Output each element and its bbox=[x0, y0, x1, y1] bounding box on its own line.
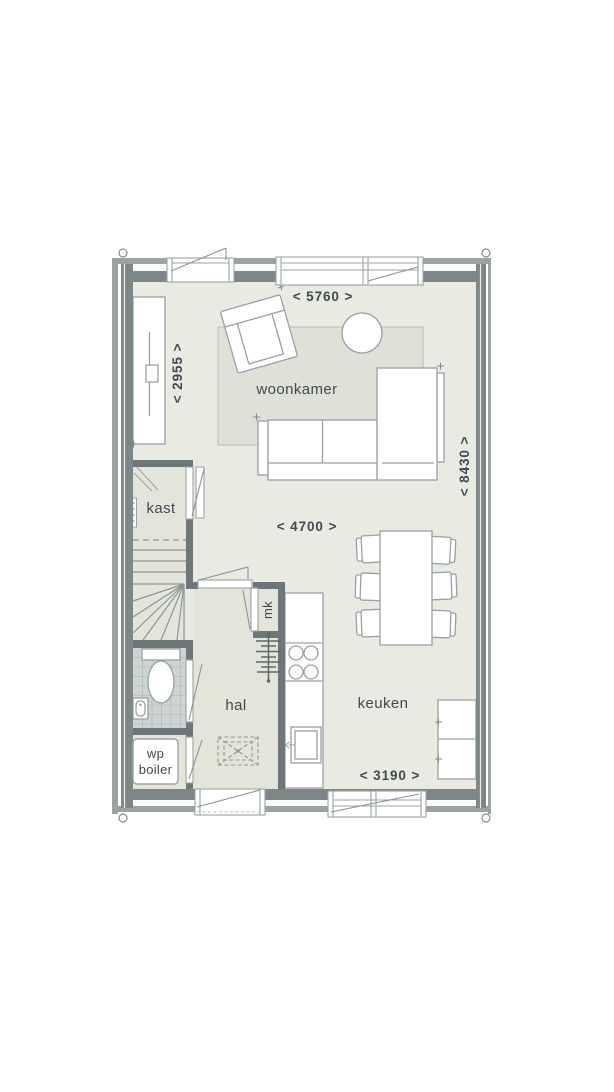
outer-leaf-bottom bbox=[112, 806, 490, 812]
window-bottom bbox=[328, 791, 426, 817]
hand-basin bbox=[133, 698, 148, 719]
room-label-mk: mk bbox=[260, 601, 275, 619]
grid-marker bbox=[119, 249, 127, 257]
dim-label-mid: < 4700 > bbox=[277, 519, 338, 534]
radiator bbox=[130, 297, 165, 448]
room-label-boiler: boiler bbox=[139, 762, 173, 777]
tall-cabinet bbox=[435, 700, 476, 779]
room-label-wp: wp bbox=[146, 746, 164, 761]
room-label-keuken: keuken bbox=[358, 695, 409, 712]
grid-marker bbox=[482, 814, 490, 822]
grid-marker bbox=[482, 249, 490, 257]
dining-table bbox=[380, 531, 432, 645]
front-door bbox=[195, 789, 265, 815]
grid-marker bbox=[119, 814, 127, 822]
coffee-table bbox=[342, 313, 382, 353]
outer-leaf-left bbox=[112, 258, 118, 814]
door-top bbox=[167, 248, 234, 282]
kitchen-counter bbox=[283, 593, 323, 788]
room-label-kast: kast bbox=[146, 500, 176, 517]
dim-label-left: < 2955 > bbox=[170, 343, 185, 404]
dim-label-top: < 5760 > bbox=[293, 289, 354, 304]
floor-closet-stairs bbox=[133, 467, 186, 640]
dim-label-right: < 8430 > bbox=[457, 436, 472, 497]
wall-left bbox=[121, 264, 133, 808]
outer-leaf-right bbox=[488, 258, 491, 814]
dim-label-bottom: < 3190 > bbox=[360, 768, 421, 783]
floor-plan: woonkamer kast hal keuken mk wp boiler <… bbox=[0, 0, 614, 1092]
room-label-woonkamer: woonkamer bbox=[255, 381, 337, 398]
window-top bbox=[276, 257, 423, 285]
floor-plan-page: woonkamer kast hal keuken mk wp boiler <… bbox=[0, 0, 614, 1092]
room-label-hal: hal bbox=[225, 697, 246, 714]
